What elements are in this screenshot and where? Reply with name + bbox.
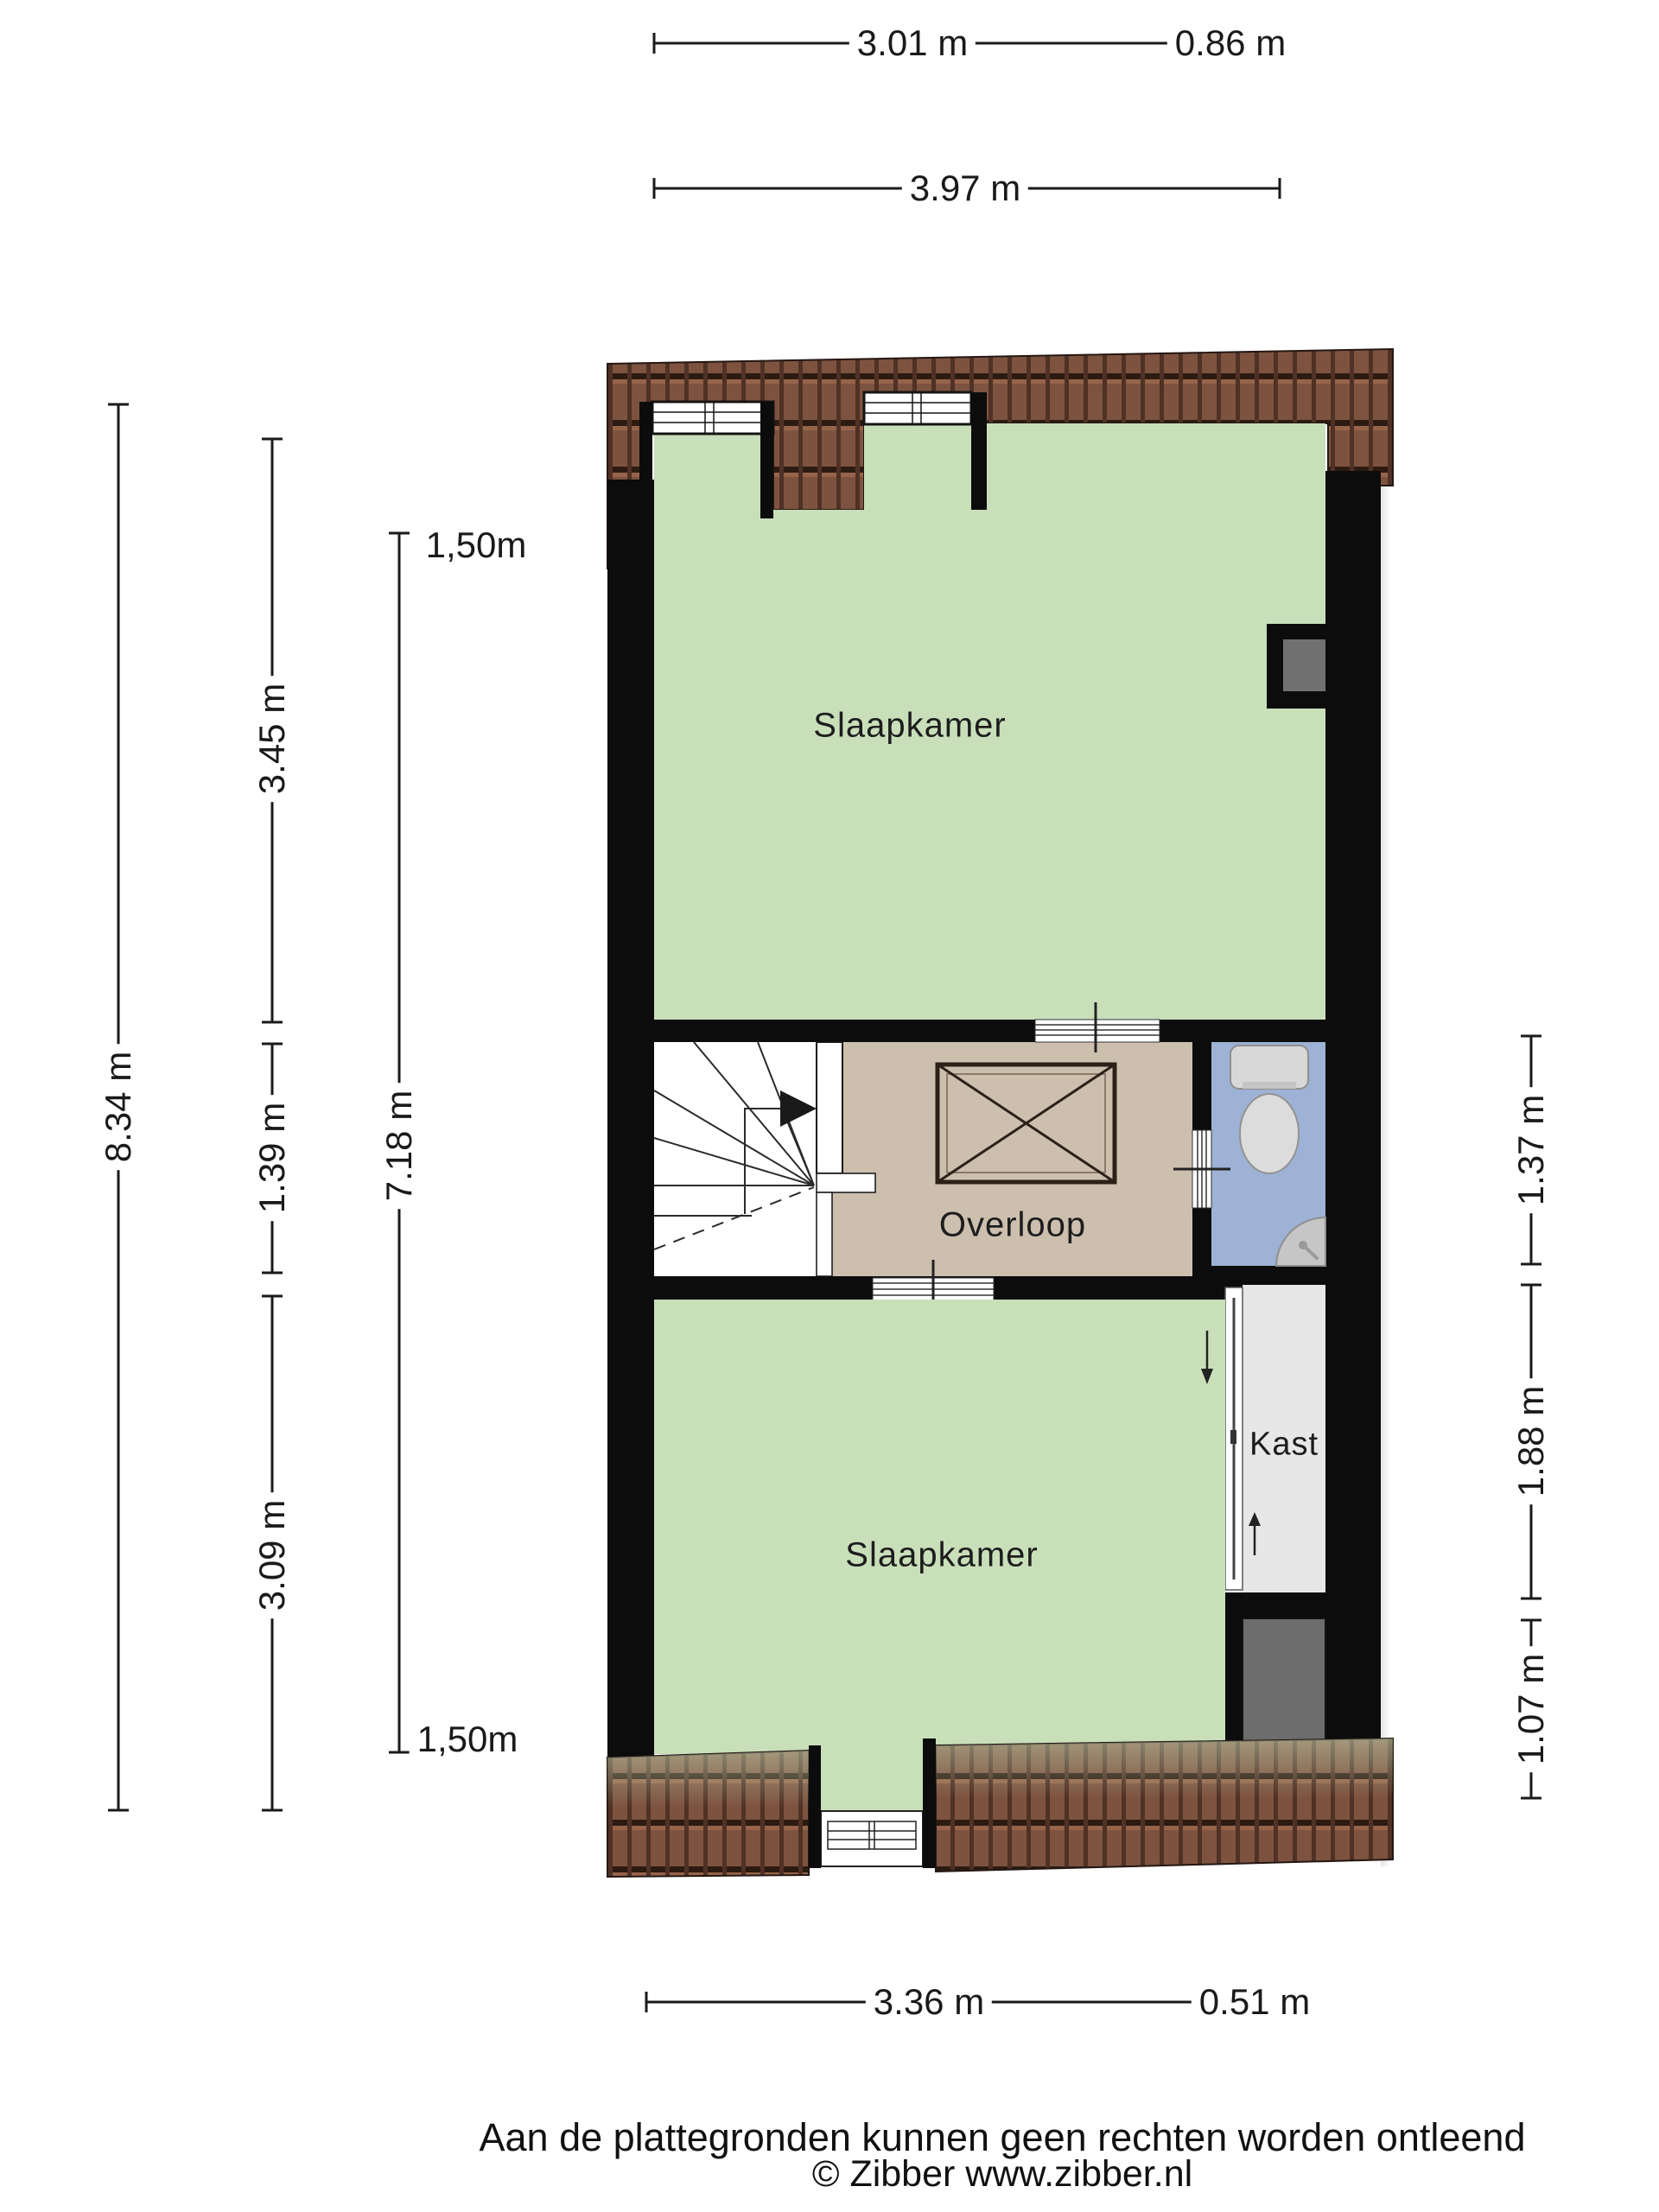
page-edge-shadow — [1381, 354, 1391, 1866]
floorplan-drawing — [0, 0, 1659, 2212]
dim-top-left-segment: 3.01 m — [849, 23, 976, 63]
sliding-door-icon — [1225, 1287, 1243, 1590]
dim-left-upper: 3.45 m — [252, 676, 292, 802]
dormer-window-right — [864, 392, 971, 424]
dim-bottom-left-segment: 3.36 m — [866, 1982, 992, 2022]
wall-left — [607, 480, 654, 1763]
dim-bottom-right-segment: 0.51 m — [1192, 1982, 1318, 2022]
dim-left-middle: 1.39 m — [252, 1095, 292, 1221]
bedroom-bottom-dormer-bay — [821, 1754, 923, 1811]
dim-clearance-lower: 1,50m — [410, 1719, 526, 1759]
dim-right-upper: 1.37 m — [1511, 1087, 1551, 1213]
chimney — [1267, 624, 1331, 709]
dim-left-overall: 8.34 m — [99, 1044, 138, 1170]
wall-closet-bottom — [1223, 1592, 1381, 1618]
bottom-window — [821, 1811, 923, 1866]
dormer-window-left — [652, 402, 773, 434]
dim-left-lower: 3.09 m — [252, 1492, 292, 1618]
roof-bottom — [607, 1738, 1393, 1877]
room-label-landing: Overloop — [939, 1206, 1086, 1245]
wall-bathroom-bottom — [1192, 1266, 1381, 1285]
wall-right — [1325, 471, 1381, 1763]
room-label-closet: Kast — [1249, 1427, 1319, 1464]
wall-landing-top — [607, 1020, 1381, 1042]
footer-credit: © Zibber www.zibber.nl — [812, 2153, 1192, 2196]
dim-right-lower: 1.07 m — [1511, 1646, 1551, 1772]
room-label-bedroom-top: Slaapkamer — [813, 707, 1006, 746]
dim-left-inner-total: 7.18 m — [379, 1083, 419, 1209]
bedroom-bottom-floor — [654, 1300, 1225, 1754]
dim-top-total: 3.97 m — [902, 168, 1028, 208]
dim-top-right-segment: 0.86 m — [1167, 23, 1294, 63]
dim-right-middle: 1.88 m — [1511, 1378, 1551, 1504]
wall-shaft-left — [1223, 1592, 1243, 1763]
room-label-bedroom-bottom: Slaapkamer — [845, 1536, 1038, 1575]
dim-clearance-upper: 1,50m — [418, 525, 535, 565]
